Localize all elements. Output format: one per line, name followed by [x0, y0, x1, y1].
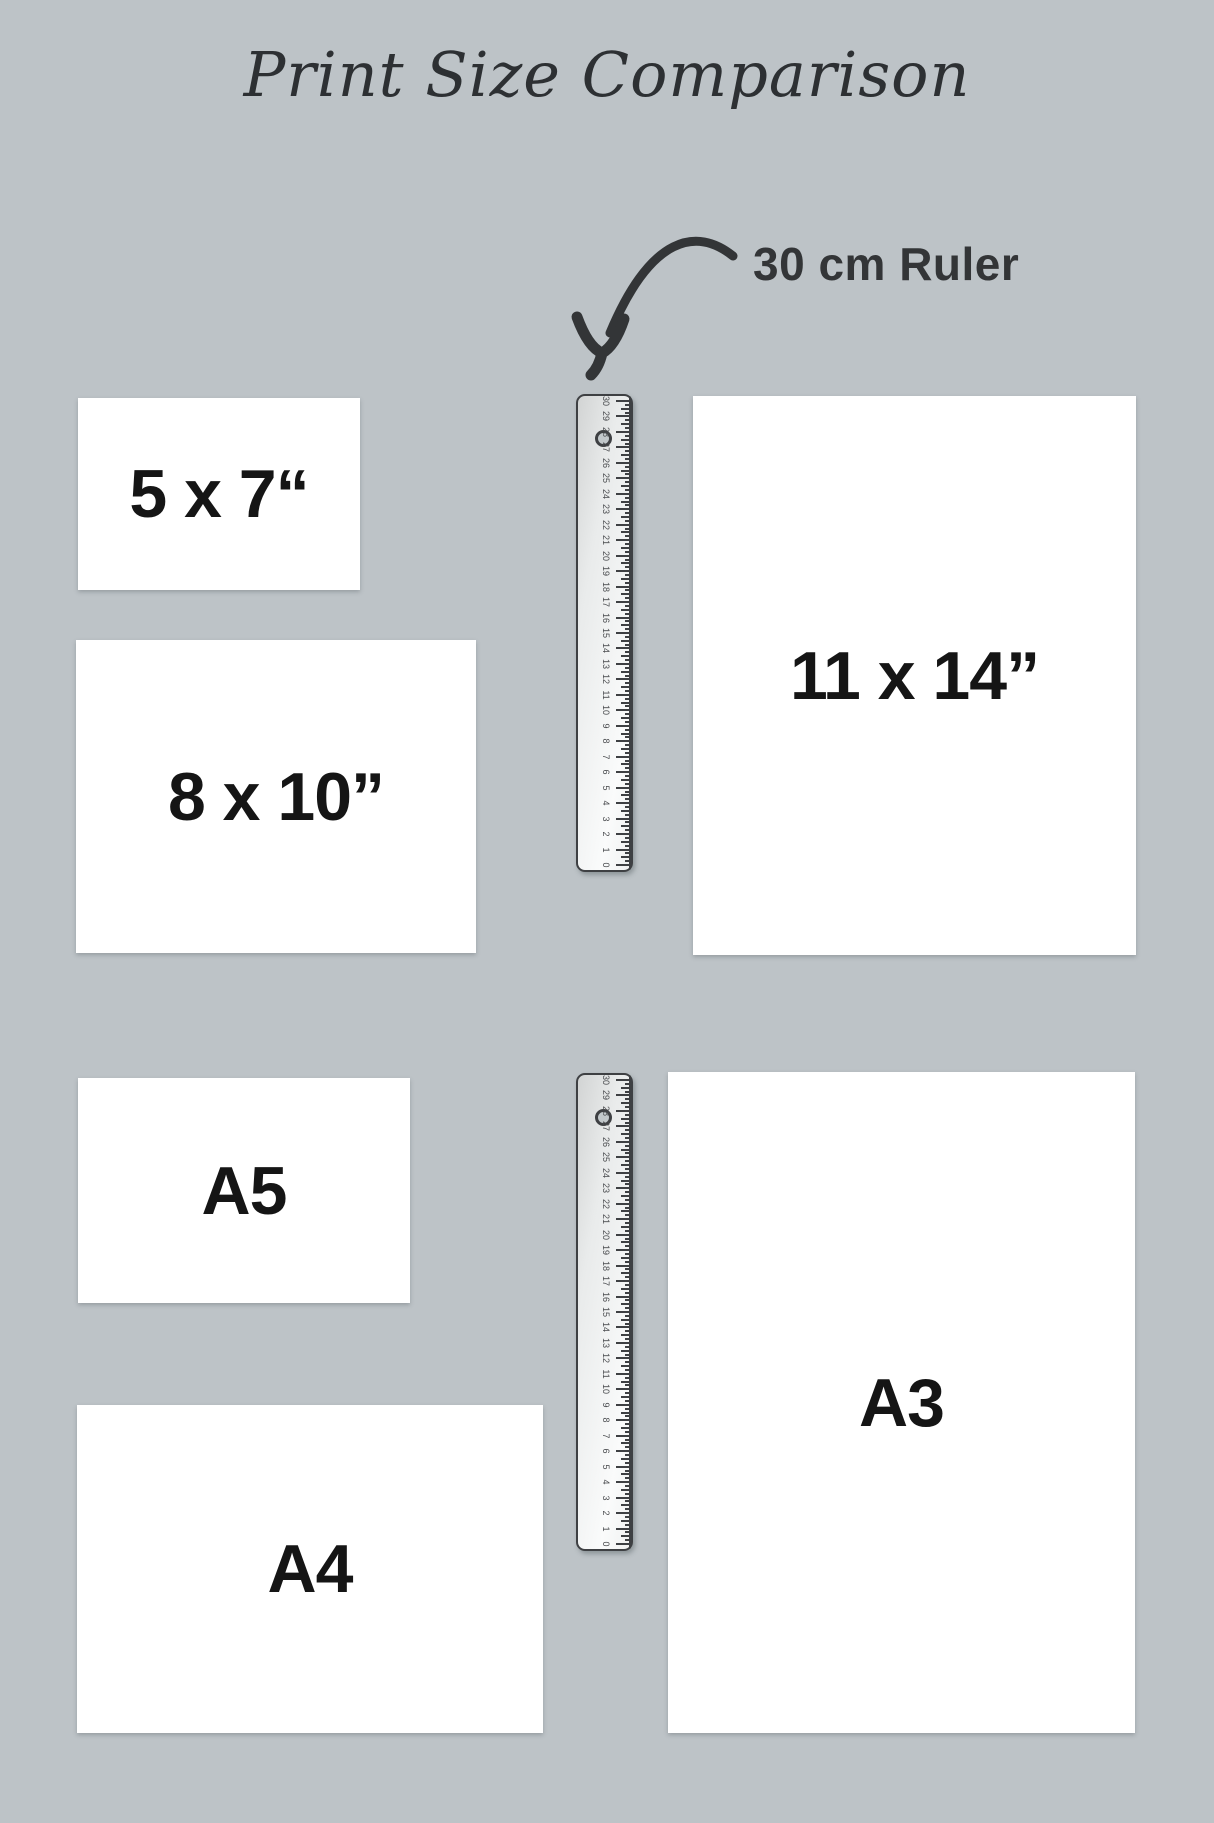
ruler-tick	[621, 593, 629, 595]
ruler-tick	[621, 1288, 629, 1290]
ruler-tick	[625, 1446, 630, 1448]
ruler-number: 3	[600, 810, 612, 828]
ruler-tick	[625, 528, 630, 530]
ruler-tick	[625, 744, 630, 746]
ruler-tick	[625, 473, 630, 475]
ruler-tick	[616, 771, 629, 773]
ruler-tick	[625, 1122, 630, 1124]
ruler-number: 22	[600, 1195, 612, 1213]
ruler-tick	[625, 1338, 630, 1340]
ruler-tick	[621, 1520, 629, 1522]
ruler-tick	[625, 1145, 630, 1147]
ruler-tick	[625, 783, 630, 785]
ruler-tick	[625, 1539, 630, 1541]
ruler-tick	[616, 1497, 629, 1499]
ruler-tick	[625, 690, 630, 692]
ruler-tick	[621, 624, 629, 626]
ruler-tick	[621, 810, 629, 812]
ruler-tick	[616, 1388, 629, 1390]
ruler-tick	[625, 729, 630, 731]
ruler-number: 16	[600, 1288, 612, 1306]
ruler-tick	[625, 1222, 630, 1224]
ruler-tick	[625, 566, 630, 568]
ruler-tick	[625, 1098, 630, 1100]
ruler-tick	[616, 1373, 629, 1375]
ruler-tick	[616, 1280, 629, 1282]
ruler-tick	[625, 574, 630, 576]
ruler-number: 29	[600, 407, 612, 425]
ruler-tick	[625, 613, 630, 615]
ruler-tick	[625, 1207, 630, 1209]
ruler-tick	[621, 1334, 629, 1336]
ruler-tick	[625, 404, 630, 406]
ruler-tick	[616, 1404, 629, 1406]
ruler-tick	[616, 1110, 629, 1112]
page-title: Print Size Comparison	[0, 38, 1214, 111]
ruler-number: 16	[600, 609, 612, 627]
ruler-tick	[616, 508, 629, 510]
ruler-tick	[625, 466, 630, 468]
ruler-tick	[625, 1168, 630, 1170]
ruler-tick	[625, 1152, 630, 1154]
ruler-tick	[625, 1415, 630, 1417]
ruler-number: 28	[600, 1102, 612, 1120]
ruler-tick	[616, 1450, 629, 1452]
ruler-tick	[621, 841, 629, 843]
ruler-tick	[625, 1531, 630, 1533]
ruler-tick	[616, 1265, 629, 1267]
ruler-number: 30	[600, 392, 612, 410]
ruler-tick	[625, 1408, 630, 1410]
ruler-tick	[625, 1214, 630, 1216]
ruler-tick	[621, 1272, 629, 1274]
ruler-number: 22	[600, 516, 612, 534]
paper-11x14: 11 x 14”	[693, 396, 1136, 955]
ruler-tick	[625, 698, 630, 700]
ruler-tick	[625, 837, 630, 839]
ruler-tick	[625, 736, 630, 738]
ruler-tick	[625, 605, 630, 607]
ruler-tick	[625, 675, 630, 677]
paper-size-label-11x14: 11 x 14”	[790, 637, 1039, 715]
ruler-tick	[625, 1129, 630, 1131]
ruler-tick	[616, 1435, 629, 1437]
ruler-edge	[629, 1075, 631, 1549]
ruler-tick	[625, 1199, 630, 1201]
ruler-tick	[625, 1284, 630, 1286]
ruler-number: 24	[600, 1164, 612, 1182]
ruler-tick	[621, 1427, 629, 1429]
ruler-number: 18	[600, 578, 612, 596]
ruler-tick	[621, 501, 629, 503]
ruler-tick	[625, 458, 630, 460]
ruler-tick	[625, 1114, 630, 1116]
ruler-tick	[621, 1473, 629, 1475]
ruler-tick	[625, 1268, 630, 1270]
ruler-tick	[616, 1094, 629, 1096]
ruler-number: 9	[600, 1396, 612, 1414]
ruler-tick	[616, 477, 629, 479]
ruler-number: 14	[600, 1318, 612, 1336]
ruler-tick	[625, 1485, 630, 1487]
ruler-tick	[625, 1384, 630, 1386]
ruler-tick	[625, 806, 630, 808]
ruler-tick	[625, 1191, 630, 1193]
ruler-tick	[625, 1276, 630, 1278]
ruler-tick	[625, 682, 630, 684]
ruler-tick	[616, 1141, 629, 1143]
paper-size-label-5x7: 5 x 7“	[129, 455, 308, 533]
print-size-comparison-poster: Print Size Comparison 30 cm Ruler 5 x 7“…	[0, 0, 1214, 1823]
ruler-tick	[625, 798, 630, 800]
paper-size-label-a3: A3	[859, 1364, 944, 1442]
ruler-tick	[621, 408, 629, 410]
ruler-tick	[616, 632, 629, 634]
ruler-tick	[616, 539, 629, 541]
ruler-tick	[625, 1431, 630, 1433]
ruler-number: 26	[600, 1133, 612, 1151]
ruler-tick	[621, 1381, 629, 1383]
ruler-tick	[616, 1187, 629, 1189]
paper-a3: A3	[668, 1072, 1135, 1733]
ruler-tick	[625, 713, 630, 715]
ruler-tick	[625, 1361, 630, 1363]
ruler-number: 7	[600, 1427, 612, 1445]
ruler-tick	[625, 620, 630, 622]
ruler-tick	[616, 1079, 629, 1081]
ruler-tick	[621, 609, 629, 611]
ruler-tick	[625, 1516, 630, 1518]
ruler-tick	[616, 678, 629, 680]
ruler-tick	[621, 825, 629, 827]
ruler-tick	[616, 1311, 629, 1313]
ruler-number: 20	[600, 1226, 612, 1244]
ruler-tick	[625, 752, 630, 754]
ruler-tick	[625, 775, 630, 777]
ruler-tick	[625, 1183, 630, 1185]
ruler-tick	[625, 504, 630, 506]
ruler-tick	[625, 1400, 630, 1402]
ruler-tick	[625, 1354, 630, 1356]
ruler-tick	[625, 582, 630, 584]
ruler-tick	[621, 733, 629, 735]
ruler-tick	[621, 423, 629, 425]
ruler-tick	[621, 1241, 629, 1243]
ruler-tick	[625, 1160, 630, 1162]
ruler-tick	[616, 1528, 629, 1530]
ruler-number: 12	[600, 1349, 612, 1367]
ruler-tick	[625, 520, 630, 522]
ruler-tick	[625, 1369, 630, 1371]
ruler-tick	[616, 1342, 629, 1344]
ruler-tick	[616, 647, 629, 649]
paper-size-label-8x10: 8 x 10”	[168, 758, 384, 836]
ruler-tick	[625, 589, 630, 591]
ruler-tick	[621, 1365, 629, 1367]
ruler-tick	[625, 1307, 630, 1309]
ruler-tick	[616, 1543, 629, 1545]
ruler-tick	[625, 412, 630, 414]
ruler-tick	[621, 1319, 629, 1321]
ruler-tick	[621, 470, 629, 472]
ruler-tick	[616, 864, 629, 866]
ruler-tick	[625, 659, 630, 661]
ruler-tick	[616, 1203, 629, 1205]
ruler-tick	[616, 586, 629, 588]
ruler-tick	[616, 1218, 629, 1220]
ruler-tick	[616, 725, 629, 727]
ruler-tick	[625, 644, 630, 646]
ruler-tick	[616, 1234, 629, 1236]
ruler-tick	[625, 535, 630, 537]
ruler-tick	[621, 1180, 629, 1182]
ruler-tick	[616, 1156, 629, 1158]
ruler-tick	[616, 1357, 629, 1359]
ruler-tick	[621, 578, 629, 580]
ruler-tick	[616, 663, 629, 665]
ruler-tick	[616, 524, 629, 526]
ruler-tick	[616, 1466, 629, 1468]
ruler-tick	[616, 818, 629, 820]
ruler-tick	[616, 1512, 629, 1514]
ruler-tick	[625, 721, 630, 723]
ruler-tick	[616, 1296, 629, 1298]
paper-size-label-a5: A5	[202, 1152, 287, 1230]
ruler-tick	[621, 1489, 629, 1491]
ruler-tick	[616, 462, 629, 464]
ruler-tick	[625, 829, 630, 831]
ruler-tick	[621, 671, 629, 673]
ruler-tick	[621, 1087, 629, 1089]
ruler-tick	[625, 1315, 630, 1317]
ruler-tick	[625, 1137, 630, 1139]
ruler-number: 7	[600, 748, 612, 766]
ruler-tick	[625, 1176, 630, 1178]
ruler-tick	[621, 485, 629, 487]
ruler-tick	[625, 1439, 630, 1441]
ruler-tick	[625, 1524, 630, 1526]
ruler-tick	[621, 717, 629, 719]
ruler-tick	[621, 1350, 629, 1352]
ruler-tick	[625, 1500, 630, 1502]
ruler-tick	[621, 1195, 629, 1197]
ruler-tick	[625, 845, 630, 847]
ruler-tick	[621, 1257, 629, 1259]
ruler-tick	[616, 740, 629, 742]
ruler-number: 13	[600, 1334, 612, 1352]
ruler-tick	[621, 640, 629, 642]
ruler-tick	[621, 1458, 629, 1460]
ruler-tick	[621, 856, 629, 858]
ruler-tick	[621, 779, 629, 781]
ruler-tick	[616, 400, 629, 402]
ruler-tick	[621, 1210, 629, 1212]
ruler-tick	[616, 431, 629, 433]
ruler-tick	[625, 651, 630, 653]
ruler-tick	[625, 1238, 630, 1240]
ruler-number: 24	[600, 485, 612, 503]
ruler-tick	[625, 1230, 630, 1232]
ruler-number: 10	[600, 1380, 612, 1398]
ruler-tick	[621, 1442, 629, 1444]
ruler-tick	[616, 787, 629, 789]
ruler-tick	[625, 1462, 630, 1464]
ruler-number: 25	[600, 469, 612, 487]
ruler-tick	[616, 1326, 629, 1328]
ruler-tick	[625, 419, 630, 421]
paper-8x10: 8 x 10”	[76, 640, 476, 953]
ruler-tick	[621, 748, 629, 750]
ruler-tick	[616, 694, 629, 696]
ruler-tick	[621, 655, 629, 657]
ruler-tick	[621, 1164, 629, 1166]
ruler-number: 3	[600, 1489, 612, 1507]
ruler-annotation-label: 30 cm Ruler	[753, 237, 1019, 291]
ruler-number: 28	[600, 423, 612, 441]
ruler-number: 30	[600, 1071, 612, 1089]
ruler-tick	[625, 814, 630, 816]
ruler-tick	[625, 512, 630, 514]
ruler-tick	[616, 1172, 629, 1174]
ruler-tick	[616, 849, 629, 851]
ruler-tick	[625, 450, 630, 452]
ruler-tick	[621, 794, 629, 796]
ruler-tick	[621, 1149, 629, 1151]
ruler-number: 9	[600, 717, 612, 735]
ruler-tick	[625, 1377, 630, 1379]
ruler-tick	[621, 1412, 629, 1414]
ruler-tick	[621, 454, 629, 456]
ruler-tick	[625, 667, 630, 669]
ruler-tick	[616, 617, 629, 619]
ruler-number: 5	[600, 779, 612, 797]
ruler-edge	[629, 396, 631, 870]
ruler-tick	[625, 481, 630, 483]
ruler-tick	[621, 1303, 629, 1305]
ruler-tick	[625, 497, 630, 499]
ruler-tick	[621, 531, 629, 533]
paper-5x7: 5 x 7“	[78, 398, 360, 590]
ruler-tick	[616, 415, 629, 417]
ruler-tick	[625, 543, 630, 545]
ruler-tick	[625, 597, 630, 599]
ruler-number: 27	[600, 438, 612, 456]
ruler-tick	[625, 1346, 630, 1348]
ruler-number: 25	[600, 1148, 612, 1166]
ruler-tick	[625, 1106, 630, 1108]
ruler-tick	[625, 435, 630, 437]
ruler-tick	[625, 551, 630, 553]
ruler-tick	[616, 833, 629, 835]
ruler-tick	[625, 1508, 630, 1510]
ruler-tick	[625, 1493, 630, 1495]
ruler-tick	[621, 547, 629, 549]
ruler-tick	[616, 802, 629, 804]
ruler-tick	[625, 443, 630, 445]
ruler-tick	[616, 570, 629, 572]
ruler-number: 11	[600, 686, 612, 704]
ruler-tick	[616, 555, 629, 557]
ruler-tick	[625, 1292, 630, 1294]
ruler-tick	[621, 1396, 629, 1398]
ruler-tick	[616, 1249, 629, 1251]
ruler-tick	[625, 559, 630, 561]
ruler-tick	[621, 562, 629, 564]
ruler-number: 11	[600, 1365, 612, 1383]
ruler-tick	[625, 821, 630, 823]
ruler-tick	[621, 1118, 629, 1120]
ruler-tick	[625, 1392, 630, 1394]
ruler-tick	[625, 1245, 630, 1247]
ruler-tick	[621, 686, 629, 688]
ruler-number: 5	[600, 1458, 612, 1476]
ruler-tick	[625, 1454, 630, 1456]
ruler-tick	[625, 1323, 630, 1325]
ruler-number: 20	[600, 547, 612, 565]
ruler-tick	[616, 601, 629, 603]
ruler-tick	[625, 760, 630, 762]
ruler-tick	[625, 427, 630, 429]
ruler-tick	[625, 852, 630, 854]
ruler-tick	[625, 1261, 630, 1263]
ruler-number: 27	[600, 1117, 612, 1135]
ruler-tick	[625, 1470, 630, 1472]
ruler-tick	[621, 1102, 629, 1104]
ruler-tick	[616, 493, 629, 495]
ruler-30cm-top: 0123456789101112131415161718192021222324…	[576, 394, 633, 872]
ruler-tick	[621, 1535, 629, 1537]
ruler-number: 1	[600, 1520, 612, 1538]
ruler-number: 14	[600, 639, 612, 657]
ruler-tick	[616, 1419, 629, 1421]
ruler-tick	[625, 1330, 630, 1332]
ruler-number: 10	[600, 701, 612, 719]
paper-a5: A5	[78, 1078, 410, 1303]
ruler-tick	[621, 1226, 629, 1228]
ruler-tick	[625, 628, 630, 630]
ruler-tick	[625, 705, 630, 707]
ruler-tick	[625, 1091, 630, 1093]
ruler-tick	[616, 709, 629, 711]
ruler-number: 26	[600, 454, 612, 472]
ruler-number: 1	[600, 841, 612, 859]
ruler-tick	[625, 1423, 630, 1425]
ruler-tick	[625, 1083, 630, 1085]
ruler-tick	[621, 763, 629, 765]
ruler-tick	[621, 516, 629, 518]
ruler-tick	[625, 489, 630, 491]
ruler-number: 29	[600, 1086, 612, 1104]
ruler-tick	[616, 1125, 629, 1127]
ruler-tick	[625, 1477, 630, 1479]
ruler-number: 12	[600, 670, 612, 688]
ruler-tick	[621, 439, 629, 441]
ruler-tick	[625, 1253, 630, 1255]
ruler-tick	[616, 1481, 629, 1483]
paper-a4: A4	[77, 1405, 543, 1733]
paper-size-label-a4: A4	[268, 1530, 353, 1608]
ruler-tick	[621, 1504, 629, 1506]
ruler-tick	[625, 791, 630, 793]
ruler-tick	[616, 446, 629, 448]
ruler-tick	[621, 702, 629, 704]
ruler-30cm-bottom: 0123456789101112131415161718192021222324…	[576, 1073, 633, 1551]
ruler-tick	[621, 1133, 629, 1135]
ruler-tick	[625, 1299, 630, 1301]
ruler-tick	[625, 767, 630, 769]
ruler-number: 18	[600, 1257, 612, 1275]
ruler-tick	[616, 756, 629, 758]
